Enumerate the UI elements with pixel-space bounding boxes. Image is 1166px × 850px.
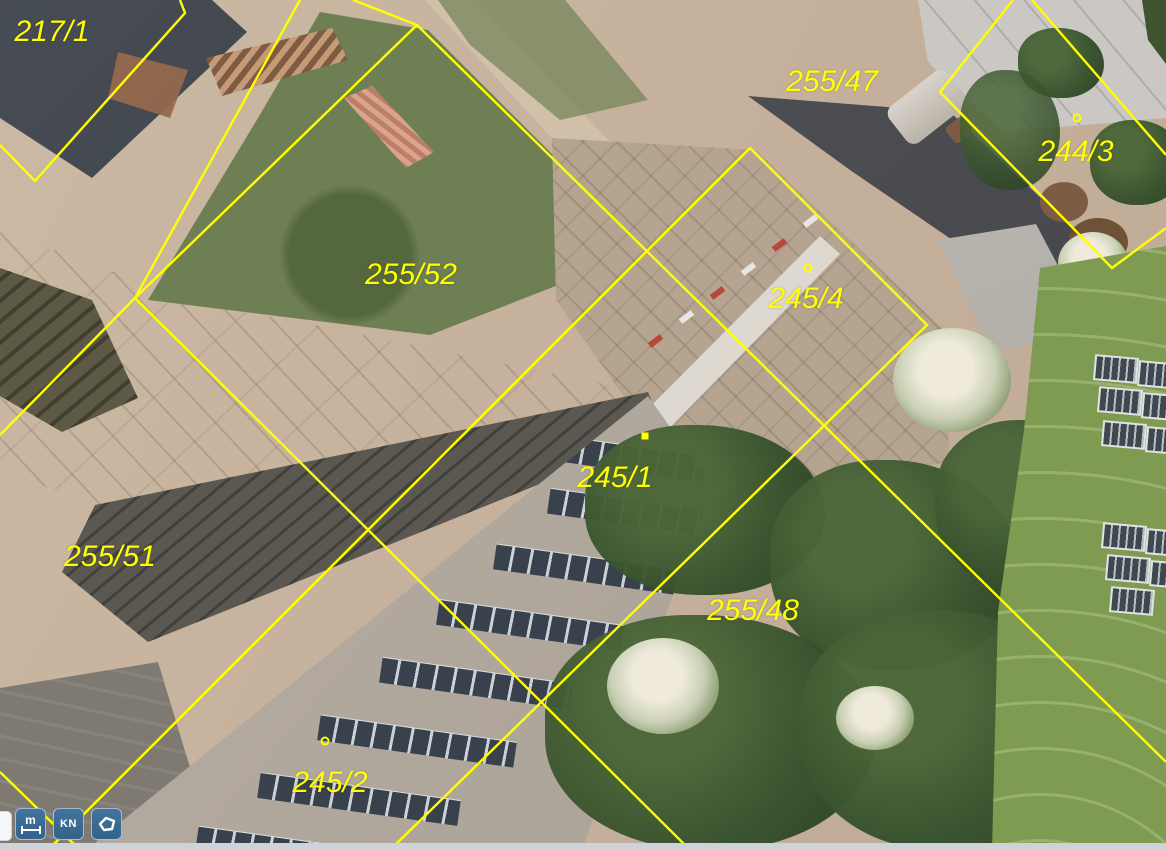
parcel-boundary-line [353,0,1166,762]
parcel-boundary-line [1032,0,1166,155]
ground-solar-array [1141,392,1166,422]
measure-label: m [25,815,36,825]
polygon-icon [96,815,118,833]
parcel-label-255-52: 255/52 [365,258,457,292]
parcel-label-245-2: 245/2 [292,766,367,800]
solar-panel-row [493,543,677,594]
curb-stripe [803,214,819,228]
tree-cluster [585,425,825,595]
warehouse-solar-roof [0,0,1166,850]
flowering-tree [1058,232,1128,294]
tree [1018,28,1104,98]
curb-stripe [741,262,757,276]
parcel-point-marker [1074,115,1081,122]
parcel-boundary-line [940,0,1166,268]
parcel-point-marker [322,738,329,745]
partial-hidden-button[interactable] [0,811,12,841]
grass-tuft [0,0,1166,850]
gray-roof-building [0,0,1166,850]
kn-button[interactable]: KN [53,808,84,840]
ground-solar-array [1101,420,1147,450]
flowering-tree [893,328,1011,432]
dark-building-roof [0,0,1166,850]
tree-cluster [935,420,1125,590]
solar-panel-row [379,657,573,709]
parcel-label-244-3: 244/3 [1038,135,1113,169]
map-toolbar: m KN [15,808,122,840]
polygon-select-button[interactable] [91,808,122,840]
gray-pavement [0,0,1166,850]
map-viewport[interactable]: 217/1255/47244/3255/52245/4245/1255/5125… [0,0,1166,850]
tree [1090,120,1166,205]
concrete-slab-road [0,0,1166,850]
log-pile [0,0,1166,850]
tree-shadow [960,70,1060,190]
measure-button[interactable]: m [15,808,46,840]
rubble-pile [1040,182,1088,222]
ground-solar-array [1109,586,1155,616]
ground-solar-array [1097,386,1143,416]
tree-cluster [545,615,875,850]
block-paved-yard [0,0,1166,850]
lumber-stack [0,0,1166,850]
parcel-boundary-line [135,25,417,298]
curb-stripe [710,286,726,300]
parcel-label-255-51: 255/51 [64,540,156,574]
ground-solar-array [1149,560,1166,590]
long-dark-building [0,0,1166,850]
concrete-walkway [0,0,1166,850]
rubble-pile [1068,218,1128,266]
solar-panel-row [547,488,727,539]
parcel-point-marker [805,265,812,272]
ground-solar-array [1145,528,1166,558]
parcel-label-255-47: 255/47 [786,65,878,99]
curb-stripe [772,238,788,252]
parcel-label-245-4: 245/4 [768,282,843,316]
solar-panel-row [257,772,461,826]
tar-roof-band [0,0,1166,850]
tree-cluster [800,610,1090,850]
kn-label: KN [60,818,77,830]
tree-cluster [770,460,1020,670]
ground-solar-array [1105,554,1151,584]
debris-pile [0,0,1166,850]
parcel-label-217-1: 217/1 [14,15,89,49]
parcel-boundary-overlay [0,0,1166,850]
solar-panel-row [436,599,626,651]
parcel-label-245-1: 245/1 [577,461,652,495]
solar-panel-row [317,714,517,767]
green-field [0,0,1166,850]
paved-yard-texture [0,0,1166,850]
ground-solar-array [1101,522,1147,552]
parcel-label-255-48: 255/48 [707,594,799,628]
parcel-boundary-line [0,0,185,181]
flowering-tree [607,638,719,734]
grass-patch [0,0,1166,850]
trailer-cab [944,115,974,144]
parcel-boundary-line [48,148,750,850]
ground-solar-array [1137,360,1166,390]
ruler-icon [21,826,41,834]
page-edge-strip [0,843,1166,850]
parcel-point-marker [642,433,649,440]
solar-panel-row [564,436,706,481]
parcel-boundary-line [0,0,300,435]
flowering-tree [836,686,914,750]
curb-stripe [679,310,695,324]
curb-stripe [648,334,664,348]
parcel-boundary-line [390,148,927,850]
ground-solar-array [1093,354,1139,384]
rusty-shed-roof [0,0,1166,850]
ground-solar-array [1145,426,1166,456]
hedge [0,0,1166,850]
rubble-pile [1096,262,1148,306]
grass-patch-top [0,0,1166,850]
light-concrete-lane [0,0,1166,850]
parcel-boundary-line [135,298,690,850]
